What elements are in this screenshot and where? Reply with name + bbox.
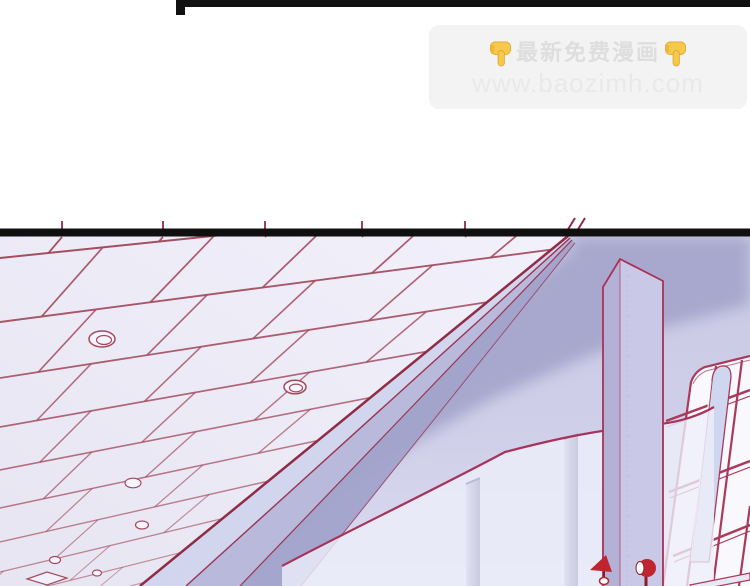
recessed-light-icon <box>50 557 61 564</box>
thumb-shade <box>665 44 669 52</box>
recessed-light-icon <box>136 521 149 529</box>
recessed-light-icon <box>125 478 141 488</box>
watermark-promo-line: 最新免费漫画 <box>488 39 688 68</box>
watermark-url: www.baozimh.com <box>472 70 704 96</box>
recessed-light-icon <box>93 570 102 576</box>
pointing-down-hand-icon <box>663 39 688 68</box>
previous-panel-corner <box>176 0 750 15</box>
pillar <box>603 259 663 586</box>
watermark-promo-text: 最新免费漫画 <box>516 42 660 64</box>
pointing-down-hand-icon <box>488 39 513 68</box>
watermark-badge: 最新免费漫画 www.baozimh.com <box>429 25 747 109</box>
thumb-shade <box>490 44 494 52</box>
panel-top-border <box>0 229 750 237</box>
